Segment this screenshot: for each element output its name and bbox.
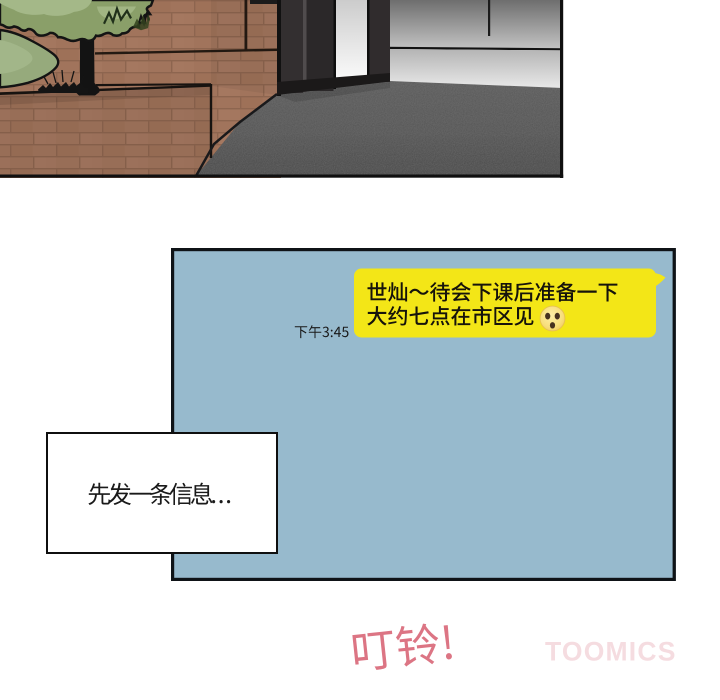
svg-text:TOOMICS: TOOMICS bbox=[545, 637, 677, 667]
